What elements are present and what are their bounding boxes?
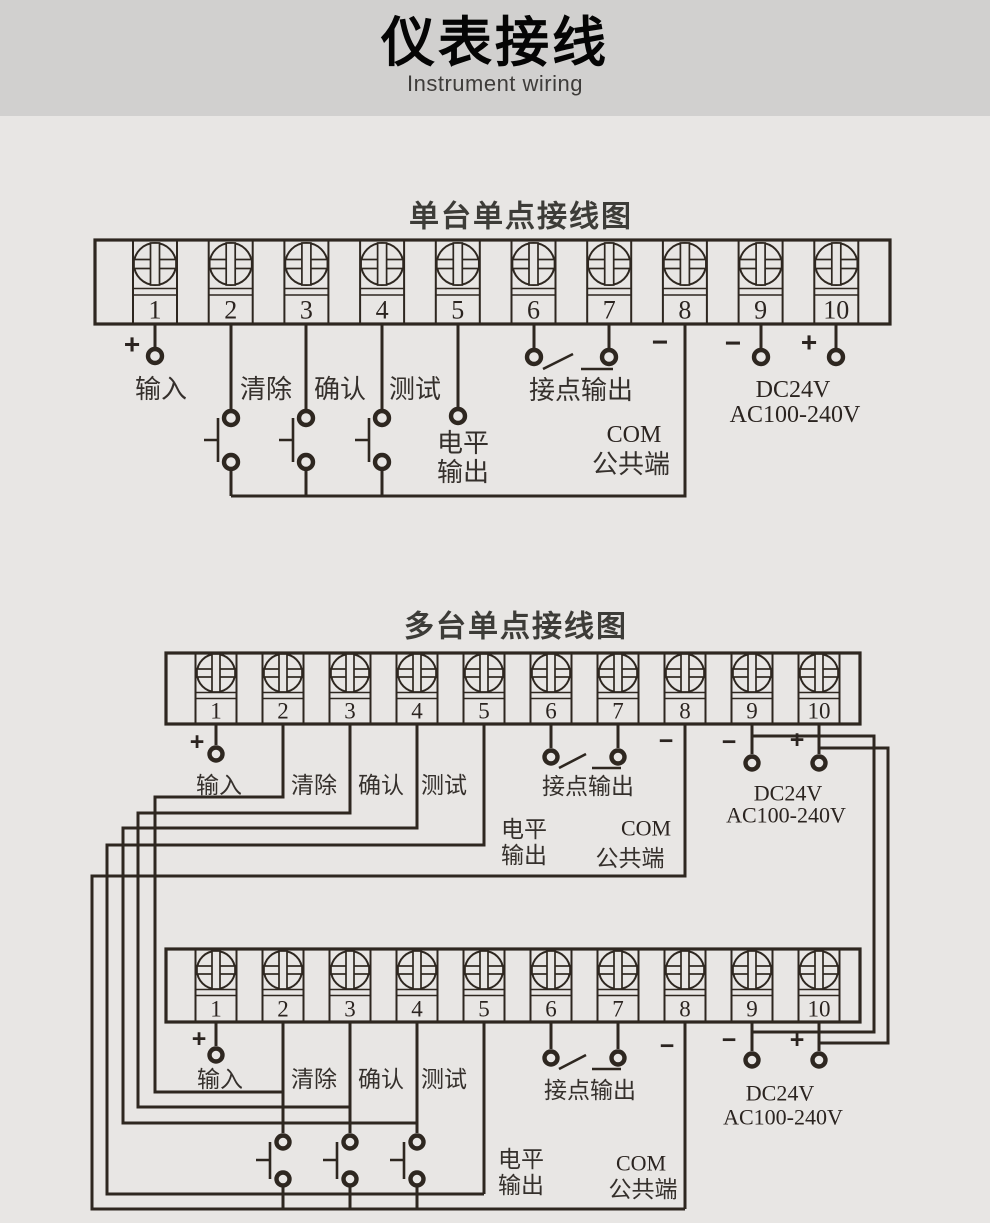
screw-slot-vertical — [547, 654, 555, 692]
diagram-multi-title: 多台单点接线图 — [404, 610, 628, 644]
button-contact — [344, 1136, 357, 1149]
screw-slot-vertical — [378, 243, 387, 285]
terminal-cell: 5 — [464, 949, 505, 1022]
terminal-number: 5 — [478, 699, 490, 724]
screw-slot-vertical — [151, 243, 160, 285]
screw-slot-vertical — [212, 654, 220, 692]
power-dc-label: DC24V — [756, 377, 831, 403]
terminal-cell: 4 — [397, 949, 438, 1022]
contact-output-label: 接点输出 — [544, 1077, 636, 1103]
input-label: 输入 — [135, 374, 187, 404]
terminal-cell: 5 — [436, 240, 480, 325]
button-contact — [375, 411, 389, 425]
screw-slot-vertical — [226, 243, 235, 285]
terminal-number: 7 — [603, 296, 616, 325]
terminal-cell: 2 — [263, 653, 304, 724]
input-label: 输入 — [196, 772, 242, 798]
level-output-ring — [451, 409, 465, 423]
terminal-cell: 9 — [739, 240, 783, 325]
level-label-1: 电平 — [437, 428, 489, 458]
terminal-cell: 3 — [330, 949, 371, 1022]
button-contact — [411, 1173, 424, 1186]
level-label-2: 输出 — [498, 1172, 544, 1198]
terminal-cell: 8 — [663, 240, 707, 325]
clear-label: 清除 — [291, 772, 337, 798]
terminal-number: 4 — [411, 997, 423, 1022]
screw-slot-vertical — [413, 654, 421, 692]
terminal-cell: 10 — [799, 949, 840, 1022]
terminal-number: 9 — [746, 699, 758, 724]
plus-sign: + — [801, 327, 817, 358]
terminal-number: 3 — [344, 699, 356, 724]
screw-slot-vertical — [212, 951, 220, 989]
contact-ring — [545, 751, 558, 764]
screw-slot-vertical — [529, 243, 538, 285]
contact-ring — [527, 350, 541, 364]
power-dc-label: DC24V — [746, 1081, 815, 1106]
terminal-number: 9 — [746, 997, 758, 1022]
terminal-number: 4 — [376, 296, 389, 325]
terminal-number: 6 — [545, 997, 557, 1022]
screw-slot-vertical — [346, 951, 354, 989]
button-contact — [299, 411, 313, 425]
screw-slot-vertical — [756, 243, 765, 285]
confirm-label: 确认 — [314, 374, 366, 404]
power-plus-ring — [813, 757, 826, 770]
button-contact — [224, 411, 238, 425]
power-minus-ring — [754, 350, 768, 364]
cell-divider — [330, 990, 371, 996]
button-contact — [375, 455, 389, 469]
screw-slot-vertical — [815, 654, 823, 692]
test-label: 测试 — [421, 1066, 467, 1092]
terminal-cell: 3 — [284, 240, 328, 325]
diagram-multi-unit: 多台单点接线图 12345678910 12345678910 + 输入 清除 … — [92, 610, 888, 1210]
terminal-cell: 2 — [209, 240, 253, 325]
button-lever — [279, 418, 293, 462]
push-button-clear — [204, 411, 238, 496]
com-common-label: 公共端 — [609, 1176, 678, 1202]
screw-slot-vertical — [453, 243, 462, 285]
terminal-cell: 10 — [799, 653, 840, 724]
button-contact — [277, 1136, 290, 1149]
input-terminal-ring — [148, 349, 162, 363]
terminal-number: 5 — [478, 997, 490, 1022]
button-contact — [344, 1173, 357, 1186]
cell-divider — [799, 990, 840, 996]
terminal-block-lower: 12345678910 — [166, 949, 860, 1022]
terminal-cell: 1 — [196, 949, 237, 1022]
terminal-cell: 1 — [196, 653, 237, 724]
push-button-confirm — [323, 1136, 357, 1210]
cell-divider — [284, 289, 328, 296]
terminal-cell: 6 — [531, 653, 572, 724]
cell-divider — [196, 990, 237, 996]
diagram-single-title: 单台单点接线图 — [409, 200, 633, 234]
plus-sign: + — [790, 1026, 805, 1054]
confirm-label: 确认 — [358, 1066, 404, 1092]
contact-ring — [602, 350, 616, 364]
terminal-number: 7 — [612, 997, 624, 1022]
screw-slot-vertical — [832, 243, 841, 285]
terminal-number: 9 — [754, 296, 767, 325]
plus-sign: + — [190, 728, 205, 756]
screw-slot-vertical — [480, 951, 488, 989]
cell-divider — [739, 289, 783, 296]
screw-slot-vertical — [681, 951, 689, 989]
minus-sign: − — [722, 1026, 737, 1054]
screw-slot-vertical — [815, 951, 823, 989]
plus-sign: + — [192, 1025, 207, 1053]
screw-slot-vertical — [680, 243, 689, 285]
cell-divider — [133, 289, 177, 296]
terminal-number: 2 — [277, 699, 289, 724]
terminal-number: 3 — [344, 997, 356, 1022]
minus-sign: − — [659, 727, 674, 755]
terminal-cell: 6 — [531, 949, 572, 1022]
screw-slot-vertical — [302, 243, 311, 285]
terminal-number: 1 — [149, 296, 162, 325]
cell-divider — [397, 990, 438, 996]
test-label: 测试 — [389, 374, 441, 404]
screw-slot-vertical — [605, 243, 614, 285]
plus-sign: + — [790, 726, 805, 754]
terminal-cell: 1 — [133, 240, 177, 325]
terminal-block-upper: 12345678910 — [166, 653, 860, 724]
terminal-number: 6 — [545, 699, 557, 724]
minus-sign: − — [652, 327, 668, 358]
screw-slot-vertical — [279, 951, 287, 989]
confirm-label: 确认 — [358, 772, 404, 798]
input-terminal-ring — [210, 748, 223, 761]
cell-divider — [209, 289, 253, 296]
cell-divider — [732, 990, 773, 996]
com-label: COM — [621, 816, 671, 841]
contact-output-label: 接点输出 — [542, 773, 634, 799]
screw-slot-vertical — [413, 951, 421, 989]
terminal-cell: 2 — [263, 949, 304, 1022]
power-plus-ring — [829, 350, 843, 364]
cell-divider — [263, 990, 304, 996]
terminal-cell: 7 — [598, 653, 639, 724]
level-label-1: 电平 — [498, 1146, 544, 1172]
level-label-2: 输出 — [437, 457, 489, 487]
terminal-cell: 7 — [598, 949, 639, 1022]
terminal-number: 5 — [451, 296, 464, 325]
button-contact — [411, 1136, 424, 1149]
button-lever — [390, 1142, 404, 1179]
minus-sign: − — [725, 328, 741, 359]
wiring-single: + 输入 清除 确认 测试 — [124, 324, 861, 496]
wiring-diagrams: 单台单点接线图 12345678910 + 输入 清除 确认 测试 — [0, 0, 990, 1223]
terminal-number: 1 — [210, 699, 222, 724]
push-button-clear — [256, 1136, 290, 1210]
com-label: COM — [607, 422, 662, 448]
input-terminal-ring — [210, 1049, 223, 1062]
button-contact — [277, 1173, 290, 1186]
clear-label: 清除 — [291, 1066, 337, 1092]
screw-slot-vertical — [681, 654, 689, 692]
terminal-number: 8 — [679, 699, 691, 724]
push-button-test — [355, 411, 389, 496]
terminal-cell: 8 — [665, 653, 706, 724]
com-common-label: 公共端 — [592, 449, 670, 479]
terminal-block: 12345678910 — [95, 240, 890, 325]
screw-slot-vertical — [346, 654, 354, 692]
button-contact — [299, 455, 313, 469]
terminal-cell: 4 — [360, 240, 404, 325]
screw-slot-vertical — [748, 951, 756, 989]
cell-divider — [360, 289, 404, 296]
cell-divider — [587, 289, 631, 296]
terminal-number: 10 — [808, 997, 831, 1022]
level-label-2: 输出 — [501, 842, 547, 868]
power-ac-label: AC100-240V — [723, 1105, 843, 1130]
cell-divider — [512, 289, 556, 296]
wiring-multi-lower: + 输入 清除 确认 测试 — [192, 1022, 843, 1209]
terminal-cell: 9 — [732, 653, 773, 724]
minus-sign: − — [722, 728, 737, 756]
input-label: 输入 — [197, 1066, 243, 1092]
power-plus-ring — [813, 1054, 826, 1067]
screw-slot-vertical — [614, 951, 622, 989]
terminal-cell: 10 — [814, 240, 858, 325]
level-label-1: 电平 — [501, 816, 547, 842]
terminal-cell: 4 — [397, 653, 438, 724]
cell-divider — [436, 289, 480, 296]
terminal-cell: 7 — [587, 240, 631, 325]
terminal-number: 10 — [808, 699, 831, 724]
contact-ring — [612, 751, 625, 764]
terminal-number: 2 — [277, 997, 289, 1022]
screw-slot-vertical — [279, 654, 287, 692]
terminal-number: 4 — [411, 699, 423, 724]
terminal-number: 8 — [679, 997, 691, 1022]
cell-divider — [531, 990, 572, 996]
test-label: 测试 — [421, 772, 467, 798]
push-button-confirm — [279, 411, 313, 496]
terminal-number: 1 — [210, 997, 222, 1022]
screw-slot-vertical — [547, 951, 555, 989]
cell-divider — [814, 289, 858, 296]
cell-divider — [464, 990, 505, 996]
terminal-number: 8 — [678, 296, 691, 325]
clear-label: 清除 — [240, 374, 292, 404]
screw-slot-vertical — [480, 654, 488, 692]
button-lever — [256, 1142, 270, 1179]
power-minus-ring — [746, 757, 759, 770]
power-ac-label: AC100-240V — [726, 803, 846, 828]
button-lever — [204, 418, 218, 462]
terminal-number: 3 — [300, 296, 313, 325]
com-common-label: 公共端 — [596, 845, 665, 871]
terminal-cell: 3 — [330, 653, 371, 724]
diagram-single-unit: 单台单点接线图 12345678910 + 输入 清除 确认 测试 — [95, 200, 890, 497]
plus-sign: + — [124, 329, 140, 360]
minus-sign: − — [660, 1032, 675, 1060]
button-contact — [224, 455, 238, 469]
push-button-test — [390, 1136, 424, 1210]
terminal-number: 2 — [224, 296, 237, 325]
terminal-number: 6 — [527, 296, 540, 325]
contact-output-label: 接点输出 — [529, 375, 633, 405]
screw-slot-vertical — [748, 654, 756, 692]
page: 仪表接线 Instrument wiring 单台单点接线图 123456789… — [0, 0, 990, 1223]
power-ac-label: AC100-240V — [730, 402, 861, 428]
cell-divider — [598, 990, 639, 996]
cell-divider — [663, 289, 707, 296]
terminal-cell: 5 — [464, 653, 505, 724]
terminal-cell: 9 — [732, 949, 773, 1022]
contact-ring — [545, 1052, 558, 1065]
terminal-cell: 8 — [665, 949, 706, 1022]
terminal-number: 7 — [612, 699, 624, 724]
terminal-cell: 6 — [512, 240, 556, 325]
power-minus-ring — [746, 1054, 759, 1067]
terminal-number: 10 — [823, 296, 849, 325]
contact-ring — [612, 1052, 625, 1065]
button-lever — [323, 1142, 337, 1179]
cell-divider — [665, 990, 706, 996]
com-label: COM — [616, 1151, 666, 1176]
screw-slot-vertical — [614, 654, 622, 692]
button-lever — [355, 418, 369, 462]
